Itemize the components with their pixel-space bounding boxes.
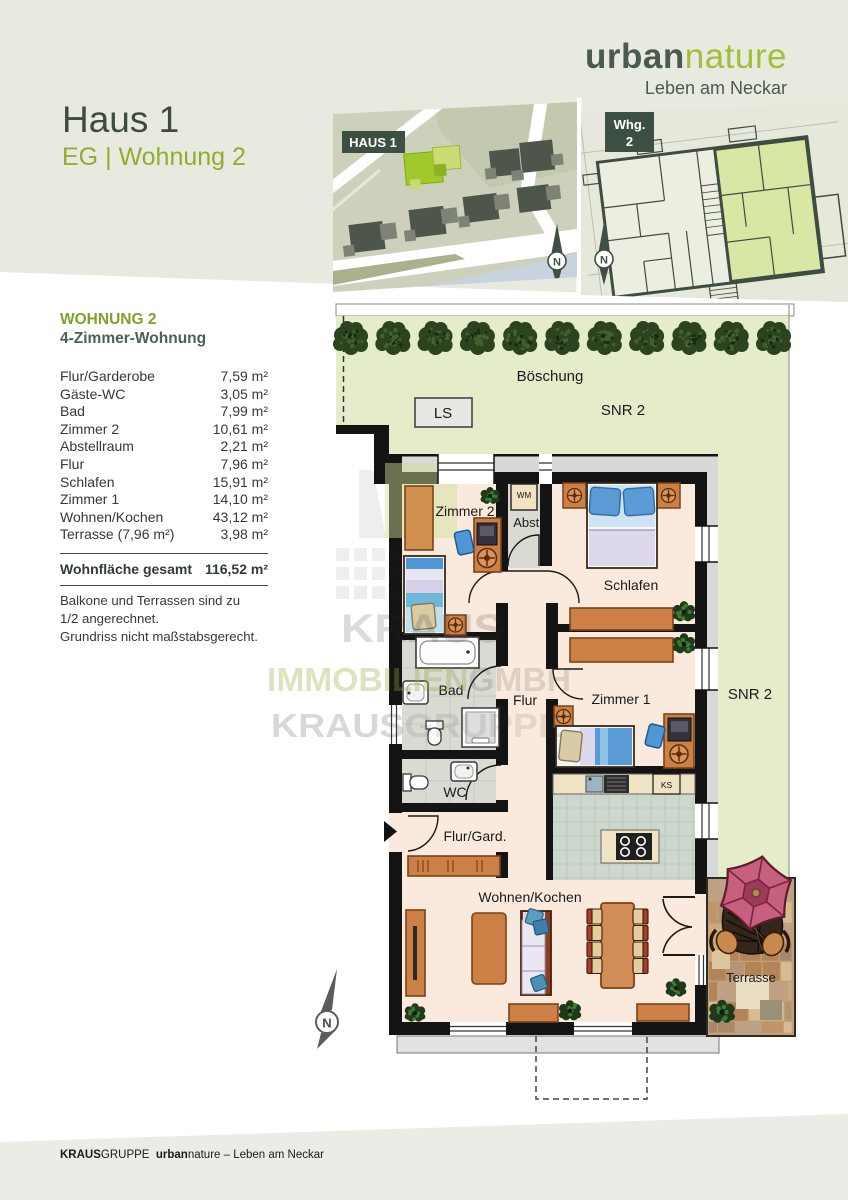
svg-text:N: N <box>600 255 608 267</box>
svg-text:Whg.: Whg. <box>614 117 646 132</box>
svg-text:N: N <box>553 257 561 269</box>
svg-text:2: 2 <box>626 134 633 149</box>
svg-text:HAUS 1: HAUS 1 <box>349 135 397 150</box>
